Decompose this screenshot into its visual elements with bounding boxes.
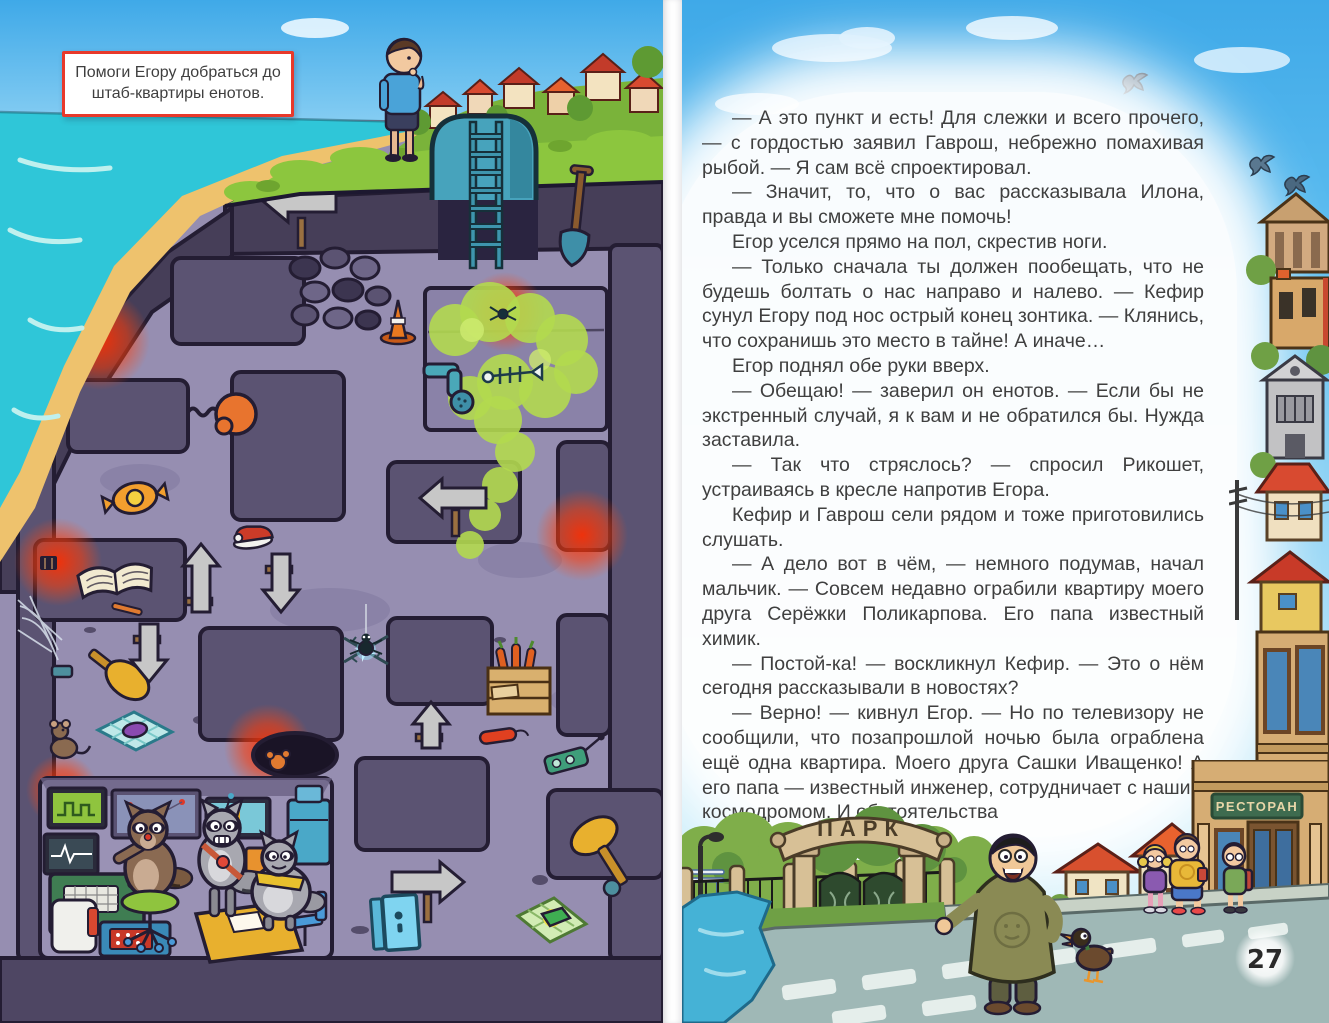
story-paragraph: — Постой-ка! — воскликнул Кефир. — Это о… [702,652,1204,702]
cloud [281,18,349,38]
street-scene: РЕСТОРАН [682,760,1329,1023]
page-number: 27 [1247,945,1283,975]
left-page-maze: Помоги Егору добраться до штаб-квартиры … [0,0,663,1023]
story-paragraph: Кефир и Гаврош сели рядом и тоже пригото… [702,503,1204,553]
city-buildings-column [1229,150,1329,775]
story-paragraph: — Значит, то, что о вас рассказывала Ило… [702,180,1204,230]
instruction-box: Помоги Егору добраться до штаб-квартиры … [62,51,294,117]
restaurant-upper-facade [1257,632,1329,775]
story-paragraph: — Только сначала ты должен пообещать, чт… [702,255,1204,354]
story-paragraph: Егор поднял обе руки вверх. [702,354,1204,379]
tan-building [1271,269,1329,348]
blue-door [370,894,420,951]
right-page-story: — А это пункт и есть! Для слежки и всего… [682,0,1329,1023]
yellow-house [1251,552,1329,634]
bottom-band [0,958,663,1023]
story-paragraph: — Обещаю! — заверил он енотов. — Если бы… [702,379,1204,453]
pit-hole [253,733,337,777]
page-gutter [663,0,682,1023]
book-spread: Помоги Егору добраться до штаб-квартиры … [0,0,1329,1023]
bird-icon [1120,72,1150,96]
restaurant-sign-text: РЕСТОРАН [1216,799,1298,814]
stone-rubble-wall [290,248,390,329]
instruction-text: Помоги Егору добраться до штаб-квартиры … [75,64,281,102]
maze-illustration [0,0,663,1023]
story-paragraph: — А это пункт и есть! Для слежки и всего… [702,106,1204,180]
page-number-badge: 27 [1235,928,1295,988]
park-sign-text: ПАРК [817,816,905,841]
tree [567,95,593,121]
hq-monitor-pulse [44,834,98,874]
raccoon-headquarters [40,778,332,962]
tree [1251,342,1279,370]
story-paragraph: — А дело вот в чём, — немного подумав, н… [702,552,1204,651]
hq-monitor-green [48,788,106,828]
tree [632,46,663,78]
story-text: — А это пункт и есть! Для слежки и всего… [702,106,1204,825]
story-paragraph: Егор уселся прямо на пол, скрестив ноги. [702,230,1204,255]
hq-white-machine [52,900,98,952]
gray-classical-building [1263,356,1327,458]
tunnel-entrance [432,116,538,268]
story-paragraph: — Так что стряслось? — спросил Рикошет, … [702,453,1204,503]
